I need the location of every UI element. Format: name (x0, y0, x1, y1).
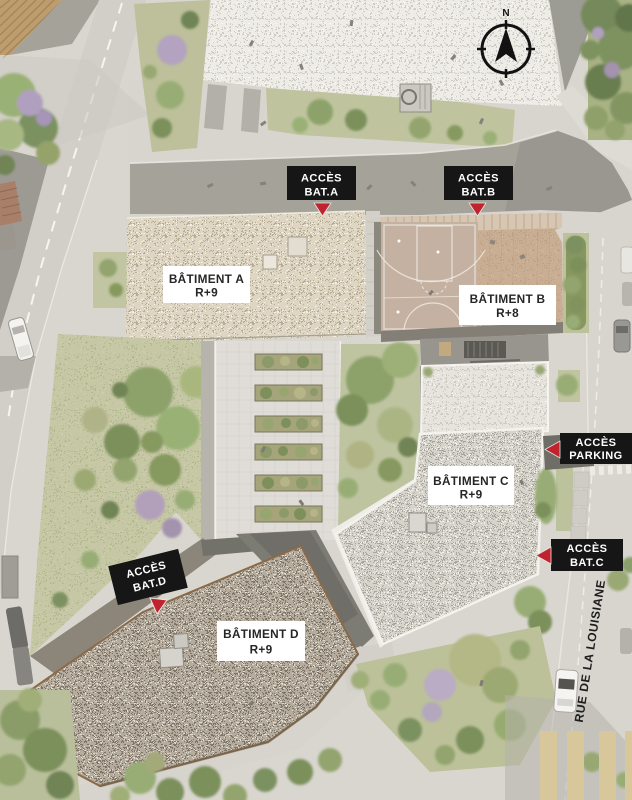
svg-text:N: N (502, 8, 509, 19)
svg-text:BÂTIMENT C: BÂTIMENT C (433, 474, 509, 488)
svg-text:BAT.A: BAT.A (304, 187, 338, 199)
svg-text:R+9: R+9 (195, 286, 218, 300)
svg-text:ACCÈS: ACCÈS (458, 172, 499, 185)
svg-text:BÂTIMENT B: BÂTIMENT B (470, 292, 546, 306)
svg-text:PARKING: PARKING (569, 450, 622, 462)
svg-text:ACCÈS: ACCÈS (566, 542, 607, 555)
svg-text:BÂTIMENT D: BÂTIMENT D (223, 627, 299, 641)
svg-text:R+9: R+9 (250, 643, 273, 657)
svg-text:R+8: R+8 (496, 306, 519, 320)
svg-text:ACCÈS: ACCÈS (575, 436, 616, 449)
svg-text:BAT.C: BAT.C (570, 557, 604, 569)
svg-text:ACCÈS: ACCÈS (301, 172, 342, 185)
svg-text:R+9: R+9 (460, 488, 483, 502)
svg-text:BAT.B: BAT.B (461, 187, 495, 199)
svg-text:BÂTIMENT A: BÂTIMENT A (169, 272, 244, 286)
